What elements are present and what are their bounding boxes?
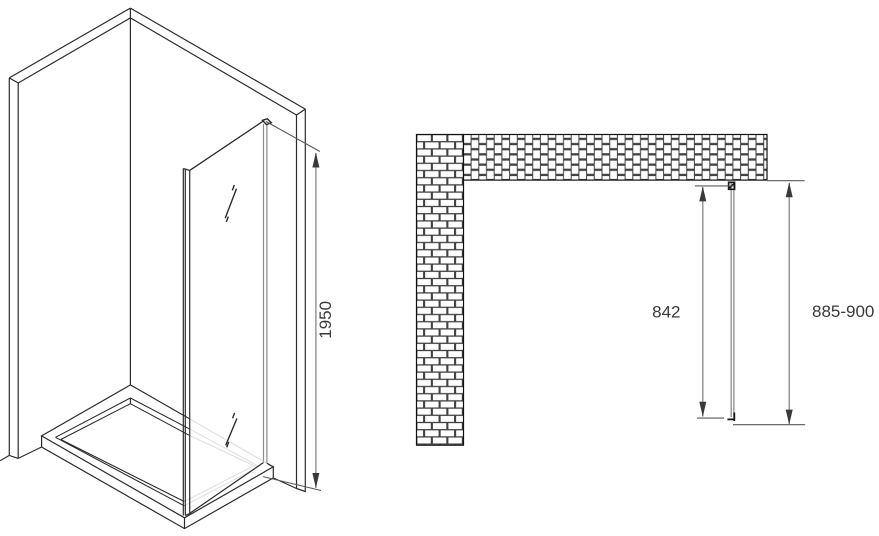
svg-text:1950: 1950 [316,301,335,339]
svg-text:885-900: 885-900 [812,302,874,321]
svg-text:842: 842 [652,302,680,321]
